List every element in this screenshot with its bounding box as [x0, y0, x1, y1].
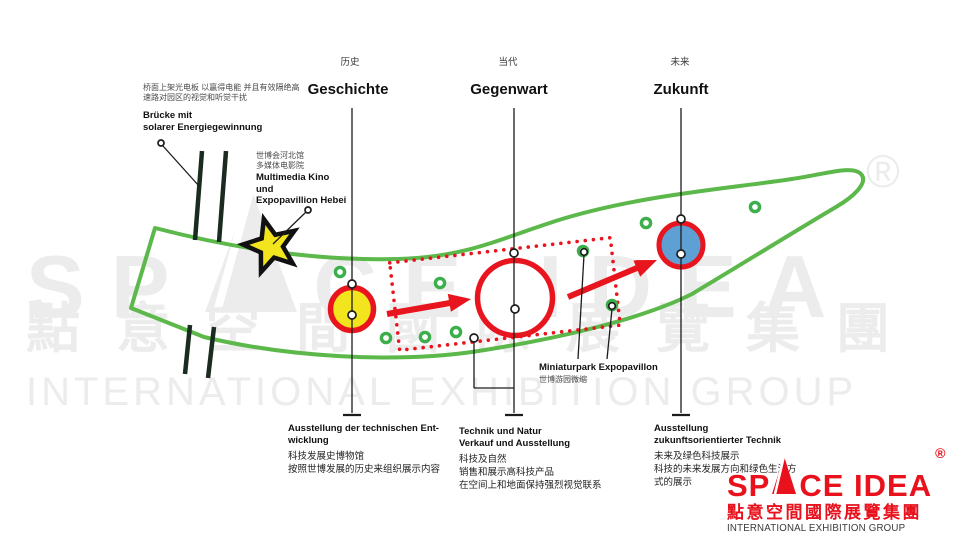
- connector-dot: [677, 215, 685, 223]
- future-de-line1: Ausstellung: [654, 423, 797, 435]
- present-node-circle: [478, 261, 553, 336]
- connector-dot: [609, 303, 616, 310]
- history-description-block: Ausstellung der technischen Ent- wicklun…: [288, 423, 440, 476]
- slide-canvas: SP CE IDEA ® 點意空間國際展覽集團 INTERNATIONAL EX…: [0, 0, 960, 540]
- logo-triangle-a-icon: [771, 455, 797, 495]
- present-zh-line2: 销售和展示高科技产品: [459, 466, 602, 479]
- connector-dot: [510, 249, 518, 257]
- pavilion-dot: [451, 327, 460, 336]
- present-zh: 科技及自然 销售和展示高科技产品 在空间上和地面保持强烈视觉联系: [459, 453, 602, 492]
- multimedia-label-de-line2: und: [256, 184, 346, 196]
- arrowhead-icon: [633, 260, 657, 277]
- miniaturpark-label-de: Miniaturpark Expopavillon: [539, 362, 658, 374]
- history-zh-line1: 科技发展史博物馆: [288, 450, 440, 463]
- logo-text-ce-idea: CE IDEA: [799, 470, 932, 501]
- star-marker: [243, 219, 295, 272]
- connector-dot: [348, 311, 356, 319]
- connector-dot: [581, 249, 588, 256]
- connector-dot: [511, 305, 519, 313]
- logo-text-sp: SP: [727, 470, 770, 501]
- miniaturpark-leader-1: [578, 255, 584, 359]
- logo-wordmark: SP CE IDEA ®: [727, 455, 946, 501]
- stage-label-future-de: Zukunft: [654, 81, 709, 98]
- future-de-line2: zukunftsorientierter Technik: [654, 435, 797, 447]
- stage-label-present-de: Gegenwart: [470, 81, 548, 98]
- history-de-line2: wicklung: [288, 435, 440, 447]
- bruecke-note-zh: 桥面上架光电板 以赢得电能 并且有效隔绝高 速路对园区的视觉和听觉干扰: [143, 83, 299, 103]
- bruecke-label-de-line2: solarer Energiegewinnung: [143, 122, 262, 134]
- space-idea-logo: SP CE IDEA ® 點意空間國際展覽集團 INTERNATIONAL EX…: [727, 455, 946, 534]
- pavilion-dot: [381, 333, 390, 342]
- multimedia-label-de: Multimedia Kino und Expopavillion Hebei: [256, 172, 346, 207]
- arrowhead-icon: [448, 294, 471, 312]
- stage-label-future-zh: 未来: [670, 54, 689, 68]
- connector-dot: [158, 140, 164, 146]
- bruecke-note-zh-line2: 速路对园区的视觉和听觉干扰: [143, 93, 299, 103]
- future-de: Ausstellung zukunftsorientierter Technik: [654, 423, 797, 446]
- pavilion-dot: [335, 267, 344, 276]
- stage-label-present-zh: 当代: [498, 54, 517, 68]
- connector-dot: [470, 334, 478, 342]
- history-zh-line2: 按照世博发展的历史来组织展示内容: [288, 463, 440, 476]
- multimedia-note-zh-line1: 世博会河北馆: [256, 151, 304, 161]
- solar-bridge-lines: [185, 151, 226, 378]
- pavilion-dot: [750, 202, 759, 211]
- stage-label-history-de: Geschichte: [308, 81, 389, 98]
- miniaturpark-leader-2: [607, 309, 612, 359]
- stage-label-history-zh: 历史: [340, 54, 359, 68]
- multimedia-note-zh: 世博会河北馆 多媒体电影院: [256, 151, 304, 171]
- connector-dots: [158, 140, 685, 342]
- history-de: Ausstellung der technischen Ent- wicklun…: [288, 423, 440, 446]
- pavilion-dot: [435, 278, 444, 287]
- pavilion-dot: [420, 332, 429, 341]
- multimedia-note-zh-line2: 多媒体电影院: [256, 161, 304, 171]
- pavilion-dot: [641, 218, 650, 227]
- logo-group-name: INTERNATIONAL EXHIBITION GROUP: [727, 524, 946, 534]
- present-de-line2: Verkauf und Ausstellung: [459, 438, 602, 450]
- logo-registered-icon: ®: [935, 446, 946, 460]
- connector-dot: [677, 250, 685, 258]
- bruecke-note-zh-line1: 桥面上架光电板 以赢得电能 并且有效隔绝高: [143, 83, 299, 93]
- multimedia-label-de-line3: Expopavillion Hebei: [256, 195, 346, 207]
- present-de: Technik und Natur Verkauf und Ausstellun…: [459, 426, 602, 449]
- present-zh-line1: 科技及自然: [459, 453, 602, 466]
- logo-chinese-name: 點意空間國際展覽集團: [727, 504, 946, 521]
- history-zh: 科技发展史博物馆 按照世博发展的历史来组织展示内容: [288, 450, 440, 476]
- multimedia-label-de-line1: Multimedia Kino: [256, 172, 346, 184]
- miniaturpark-label-zh: 世博游园微缩: [539, 375, 587, 385]
- bruecke-label-de-line1: Brücke mit: [143, 110, 262, 122]
- connector-dot: [348, 280, 356, 288]
- bruecke-label-de: Brücke mit solarer Energiegewinnung: [143, 110, 262, 133]
- connector-dot: [305, 207, 311, 213]
- present-description-block: Technik und Natur Verkauf und Ausstellun…: [459, 426, 602, 492]
- history-de-line1: Ausstellung der technischen Ent-: [288, 423, 440, 435]
- present-de-line1: Technik und Natur: [459, 426, 602, 438]
- flow-arrow-present-to-future: [568, 268, 637, 297]
- present-zh-line3: 在空间上和地面保持强烈视觉联系: [459, 479, 602, 492]
- bruecke-leader-line: [163, 146, 199, 186]
